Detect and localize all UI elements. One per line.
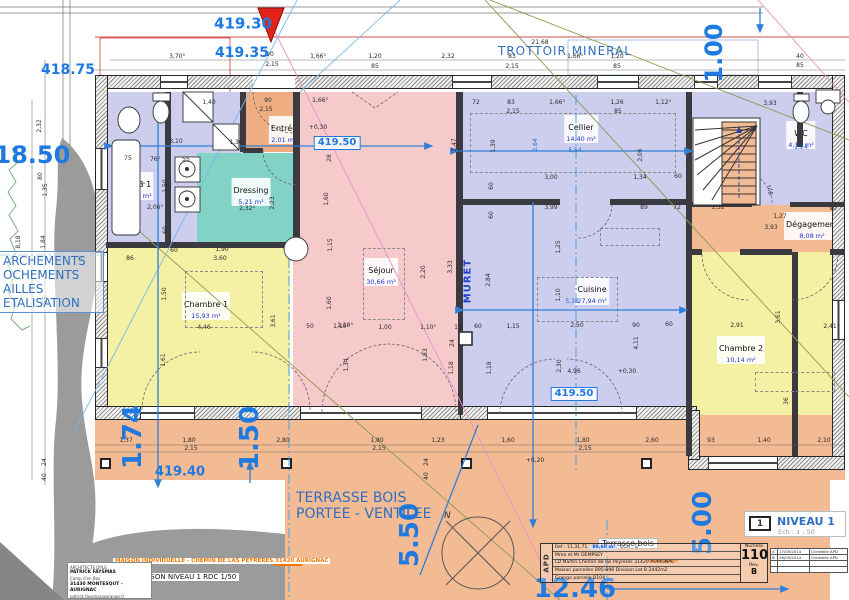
revision-cell [771, 567, 778, 573]
dimension-text: 2,64 [533, 138, 539, 151]
title-row-addr1: LD Martin Chemin de las Peyreres 31420 A… [553, 560, 740, 568]
dimension-text: 86 [126, 256, 134, 262]
dimension-text: +0,30 [309, 125, 327, 131]
dimension-text: 5,54 [568, 148, 581, 154]
dimension-text: 4,11 [634, 336, 640, 349]
dimension-text: 60 [665, 322, 673, 328]
dimension-text: 1,36 [229, 140, 242, 146]
dimension-text: 2,23 [270, 196, 276, 209]
dimension-text: 1,18 [449, 361, 455, 374]
elevation-label: 1.74 [120, 405, 146, 469]
left-annotation-line: OCHEMENTS [3, 268, 103, 282]
level-title: NIVEAU 1 [777, 515, 835, 528]
elevation-label: 1.50 [237, 406, 263, 470]
sheet-number-cell: Numero 110 Rev. B [740, 544, 767, 582]
scale-label: ECH : 1/ [620, 545, 639, 550]
dimension-text: 13 [454, 325, 462, 331]
dimension-text: +0,20 [526, 458, 544, 464]
dimension-text: 89 [640, 205, 648, 211]
dimension-text: 5,38 [565, 299, 578, 305]
dimension-text: 55 [182, 157, 190, 163]
dimension-text: 1,15 [328, 238, 334, 251]
ref-label: Ref : 11.31.71 [555, 545, 587, 550]
dimension-text: 2,50 [570, 323, 583, 329]
dimension-text: 1,26 [610, 100, 623, 106]
dimension-text: 3,33 [448, 260, 454, 273]
phase-label: APD [543, 553, 551, 572]
dimension-text: 1,52 [711, 205, 724, 211]
dimension-text: 60 [489, 211, 495, 219]
dimension-text: 1,84 [41, 235, 47, 248]
dimension-text: 1,60 [327, 296, 333, 309]
terrasse-line2: PORTEE - VENTILEE [296, 506, 431, 522]
sheet-number: 110 [741, 549, 767, 563]
dimension-text: 2,15 [259, 107, 272, 113]
title-row-addr3: Grange parcelle B104 [553, 575, 740, 582]
dimension-text: 24 [424, 458, 430, 466]
dimension-text: 93 [707, 438, 715, 444]
dimension-text: 90 [632, 323, 640, 329]
dimension-text: 28 [327, 154, 333, 162]
dimension-text: 85 [614, 109, 622, 115]
title-row-client: Mme et Mr DEMPSEY [553, 552, 740, 560]
column-post [459, 332, 472, 345]
dimension-text: 1,66⁵ [310, 54, 326, 60]
dimension-text: 8,18 [16, 235, 22, 248]
terrasse-line1: TERRASSE BOIS [296, 490, 431, 506]
revision-cell [778, 567, 810, 573]
dimension-text: 1,34 [633, 175, 646, 181]
dimension-text: 3,70⁵ [169, 54, 185, 60]
dimension-text: 1,15 [506, 324, 519, 330]
dimension-text: 80 [38, 172, 44, 180]
elevation-label: 419.40 [155, 466, 205, 479]
dimension-text: 3,60 [213, 256, 226, 262]
dimension-text: 2,32 [441, 54, 454, 60]
dimension-text: 24 [42, 458, 48, 466]
dimension-text: 3,93 [763, 101, 776, 107]
title-row-addr2: Maison parcelles B95-B96 Division Lot B … [553, 567, 740, 575]
dimension-text: 1,27 [773, 214, 786, 220]
dimension-text: 2,15 [265, 62, 278, 68]
dimension-text: 1,80 [576, 438, 589, 444]
dimension-text: 40 [796, 54, 804, 60]
dimension-text: 1,34 [344, 358, 350, 371]
dimension-text: 36 [784, 397, 790, 405]
dimension-text: 2,15 [184, 446, 197, 452]
dimension-text: 1,39 [491, 139, 497, 152]
dimension-text: 2,84 [486, 273, 492, 286]
level-number-box: 1 [749, 516, 771, 531]
dimension-text: 1,40 [202, 100, 215, 106]
dimension-text: 4,96 [567, 369, 580, 375]
dimension-text: 40 [42, 473, 48, 481]
elevation-label: 419.30 [214, 17, 272, 32]
floor-plan-sheet: SDB 19,16 m²Dressing5,21 m²Entrée2,01 m²… [0, 0, 849, 600]
dimension-text: 90 [829, 206, 837, 212]
elevation-label: 419.35 [215, 46, 269, 60]
dimension-text: 50 [306, 324, 314, 330]
dimension-text: 3,61 [271, 314, 277, 327]
dimension-text: 1,35 [43, 183, 49, 196]
dimension-text: 1,66⁵ [549, 100, 565, 106]
area-chip: 89,60 m² [590, 545, 617, 550]
toilet-icon [793, 101, 809, 123]
architect-stamp: ARCHITECTE DPLG PATRICK FAYSMAS Camp d'e… [67, 562, 152, 599]
dimension-text: 2,80 [276, 438, 289, 444]
dimension-text: 2,15 [578, 446, 591, 452]
dimension-text: 2,41 [823, 324, 836, 330]
dimension-text: 60 [489, 182, 495, 190]
dimension-text: 2,32 [37, 119, 43, 132]
compass-north-label: N [444, 511, 451, 521]
dimension-text: 60 [474, 324, 482, 330]
dimension-text: 2,60 [645, 438, 658, 444]
dimension-text: 1,40 [757, 438, 770, 444]
dimension-text: 1,80 [370, 438, 383, 444]
revision-row-empty [771, 567, 848, 573]
dimension-text: 60 [163, 226, 169, 234]
dimension-text: 2,24 [794, 145, 807, 151]
dimension-text: 1,60 [501, 438, 514, 444]
dimension-text: 97⁵ [769, 185, 775, 195]
dimension-text: 3,93 [764, 225, 777, 231]
dimension-text: 1,20 [368, 54, 381, 60]
dimension-text: 1,90 [215, 247, 228, 253]
dimension-text: 60 [674, 174, 682, 180]
left-annotation-line: ARCHEMENTS [3, 254, 103, 268]
dimension-text: 76⁵ [150, 157, 160, 163]
dimension-text: 72 [673, 205, 681, 211]
dimension-text: 2,06⁵ [147, 205, 163, 211]
dimension-text: 85 [796, 63, 804, 69]
elevation-label: 1.00 [702, 23, 726, 82]
dimension-text: 1,18 [487, 361, 493, 374]
stairs [693, 118, 760, 205]
dimension-text: 2,15 [505, 64, 518, 70]
title-block: APD Ref : 11.31.71 89,60 m² ECH : 1/ Mme… [540, 543, 768, 583]
dimension-text: 2,20 [421, 265, 427, 278]
trottoir-label: TROTTOIR MINERAL [498, 44, 632, 58]
elevation-label: 419.50 [551, 387, 598, 401]
dimension-text: 24 [450, 339, 456, 347]
dimension-text: 1,83 [423, 348, 429, 361]
architect-contact: patrick.faysmas@orange.fr [70, 594, 149, 599]
left-annotation-line: AILLES [3, 282, 103, 296]
revision-cell [809, 567, 847, 573]
dimension-text: 2,10 [817, 438, 830, 444]
dimension-text: 1,50 [163, 179, 169, 192]
architect-addr2: 31430 MONTESQUT - AURIGNAC [70, 582, 149, 594]
elevation-label: 418.50 [0, 143, 70, 167]
column [284, 237, 308, 261]
dimension-text: 60 [170, 248, 178, 254]
dimension-text: +0,30 [618, 369, 636, 375]
revision-table: A17/05/2014Christelle APDB26/05/2014Chri… [770, 548, 848, 573]
elevation-label: 419.50 [314, 136, 361, 150]
dimension-text: 3,10 [169, 139, 182, 145]
terrasse-label: TERRASSE BOIS PORTEE - VENTILEE [296, 490, 431, 522]
dimension-text: 1,61 [161, 353, 167, 366]
left-annotation-box: ARCHEMENTSOCHEMENTSAILLESETALISATION [0, 251, 104, 313]
dimension-text: 75 [124, 156, 132, 162]
toilet-icon [153, 101, 169, 123]
dimension-text: 2,47 [452, 138, 458, 151]
dimension-text: 85 [613, 64, 621, 70]
dimension-text: 85 [371, 64, 379, 70]
dimension-text: 83 [507, 100, 515, 106]
level-badge: 1 NIVEAU 1 Ech : 1 : 50 [744, 511, 846, 537]
rev-value: B [741, 568, 767, 577]
dimension-text: 1,12⁵ [655, 100, 671, 106]
dimension-text: 2,32⁵ [239, 206, 255, 212]
dimension-text: 40 [424, 472, 430, 480]
dimension-text: 1,66⁵ [312, 98, 328, 104]
phase-cell: APD [541, 544, 553, 582]
dimension-text: 1,00 [378, 325, 391, 331]
dimension-text: 2,15 [506, 109, 519, 115]
dimension-text: 3,61 [776, 310, 782, 323]
left-annotation-line: ETALISATION [3, 296, 103, 310]
dimension-text: 1,25 [556, 240, 562, 253]
dimension-text: 3,99 [544, 205, 557, 211]
dimension-text: 1,10⁵ [337, 323, 353, 329]
dimension-text: 1,80 [182, 438, 195, 444]
dimension-text: 2,30 [557, 359, 563, 372]
elevation-label: 418.75 [41, 63, 95, 77]
dimension-text: 3,00 [544, 175, 557, 181]
dimension-text: 90 [264, 98, 272, 104]
dimension-text: 1,10⁵ [420, 325, 436, 331]
dimension-text: 2,91 [730, 323, 743, 329]
dimension-text: 2,06 [638, 148, 644, 161]
dimension-text: 1,60 [324, 192, 330, 205]
title-row-ref: Ref : 11.31.71 89,60 m² ECH : 1/ [553, 544, 740, 552]
dimension-text: 4,46 [197, 325, 210, 331]
dimension-text: 1,10 [556, 288, 562, 301]
dimension-text: 1,50 [162, 287, 168, 300]
dimension-text: 2,15 [372, 446, 385, 452]
dimension-text: 72 [472, 100, 480, 106]
muret-label: MURET [463, 259, 474, 303]
dimension-text: 1,23 [431, 438, 444, 444]
level-scale: Ech : 1 : 50 [778, 528, 815, 536]
